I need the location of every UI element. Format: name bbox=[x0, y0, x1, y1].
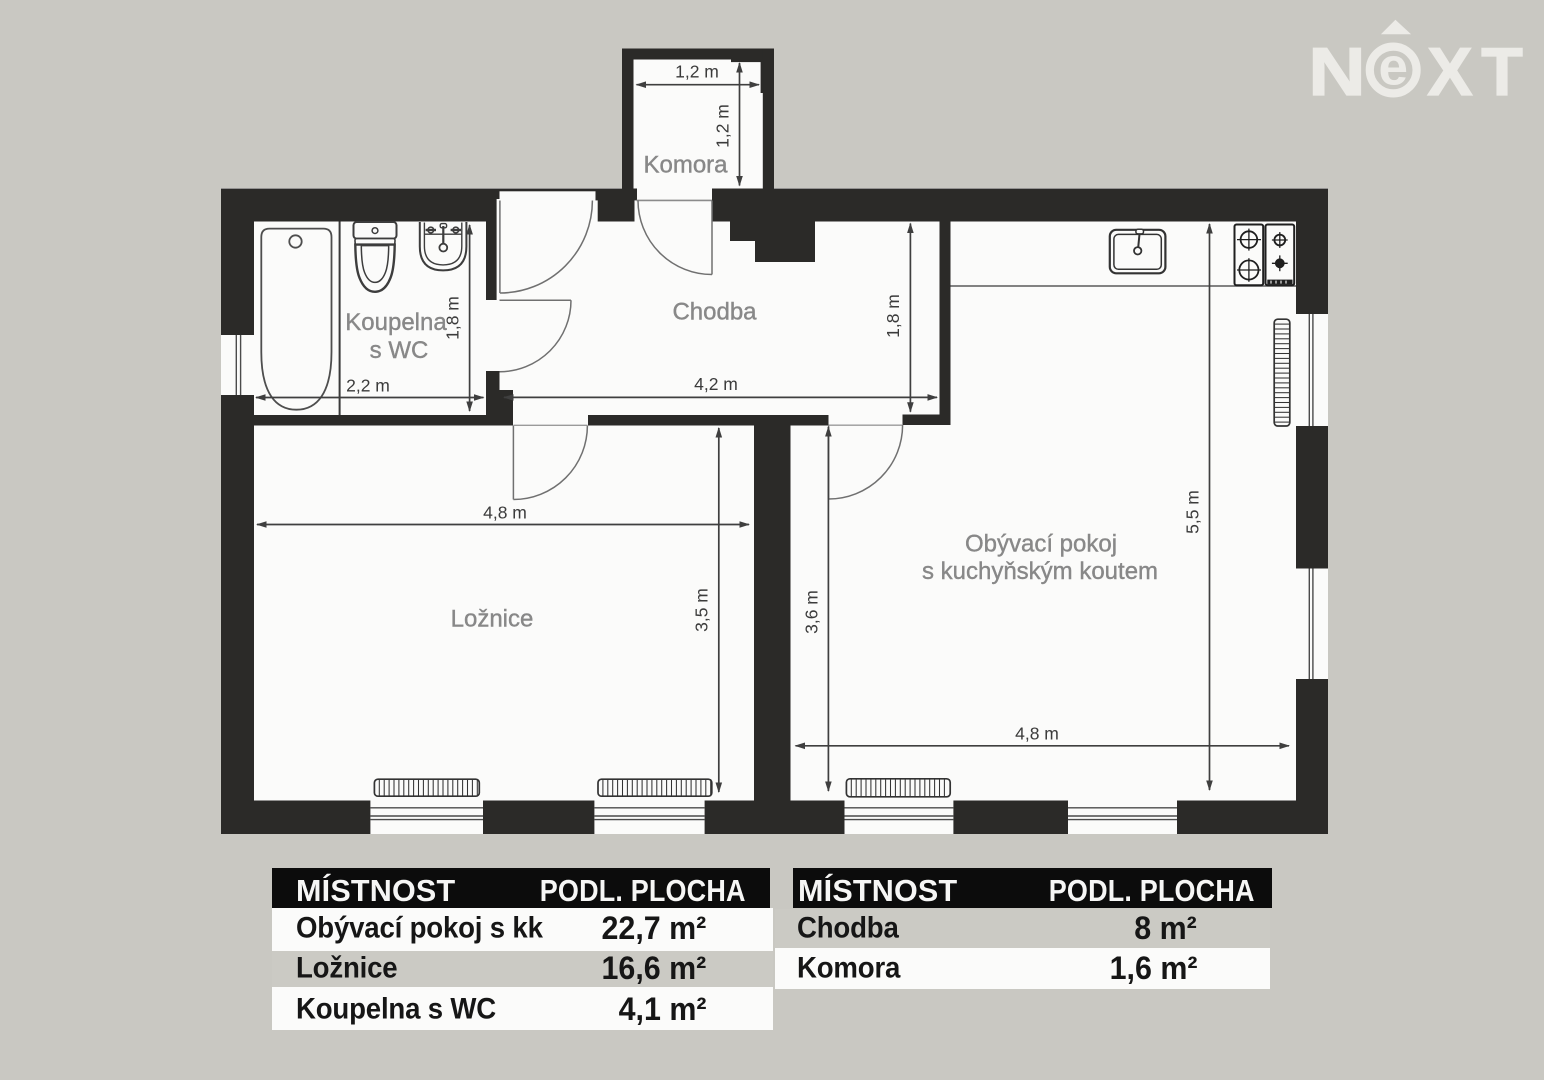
svg-text:e: e bbox=[1379, 38, 1408, 97]
svg-text:s kuchyňským koutem: s kuchyňským koutem bbox=[922, 558, 1158, 585]
svg-text:Komora: Komora bbox=[643, 152, 728, 179]
svg-text:Obývací pokoj: Obývací pokoj bbox=[965, 531, 1117, 558]
svg-text:X: X bbox=[1427, 34, 1472, 110]
svg-text:4,8 m: 4,8 m bbox=[1015, 724, 1059, 744]
svg-text:3,6 m: 3,6 m bbox=[802, 590, 822, 634]
svg-text:1,2 m: 1,2 m bbox=[675, 62, 719, 82]
svg-text:Ložnice: Ložnice bbox=[451, 606, 534, 633]
svg-text:1,2 m: 1,2 m bbox=[713, 104, 733, 148]
svg-text:Chodba: Chodba bbox=[672, 299, 757, 326]
svg-text:Koupelna: Koupelna bbox=[345, 309, 447, 336]
svg-text:3,5 m: 3,5 m bbox=[692, 588, 712, 632]
svg-text:T: T bbox=[1481, 34, 1523, 110]
svg-text:5,5 m: 5,5 m bbox=[1183, 490, 1203, 534]
svg-text:s WC: s WC bbox=[370, 337, 429, 364]
svg-text:N: N bbox=[1308, 33, 1365, 109]
svg-text:4,8 m: 4,8 m bbox=[483, 503, 527, 523]
svg-text:4,2 m: 4,2 m bbox=[694, 374, 738, 394]
svg-text:1,8 m: 1,8 m bbox=[883, 294, 903, 338]
svg-text:2,2 m: 2,2 m bbox=[346, 376, 390, 396]
